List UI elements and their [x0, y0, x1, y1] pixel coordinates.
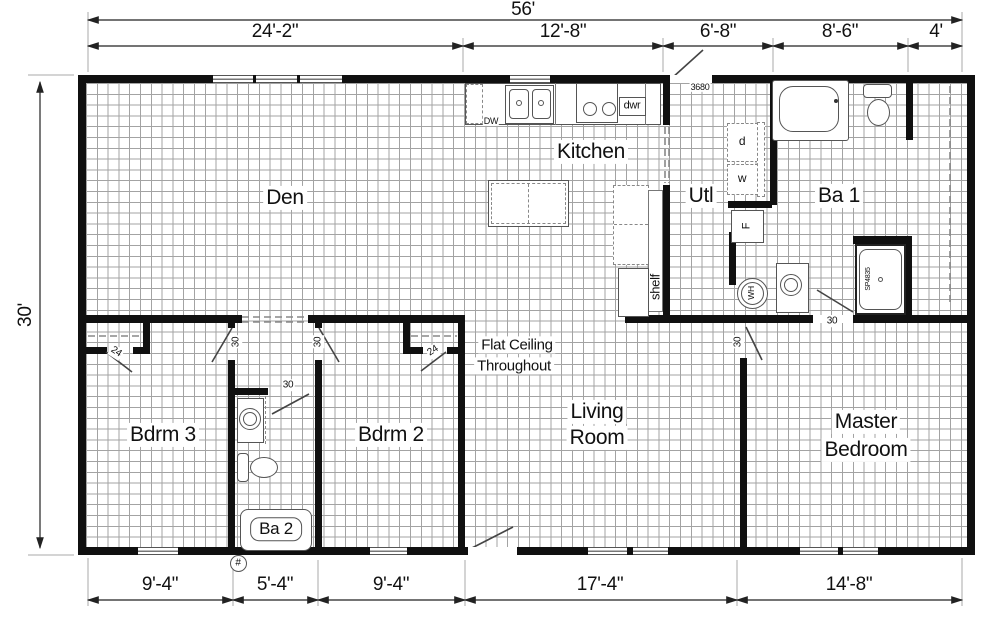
window [213, 75, 253, 83]
linework-layer [0, 0, 1000, 625]
door-leaf [212, 328, 232, 362]
floor-plan: Den Kitchen Utl Ba 1 Bdrm 3 Bdrm 2 Livin… [0, 0, 1000, 625]
door-leaf [272, 394, 309, 414]
door-leaf [672, 50, 703, 78]
door-size-tag: 3680 [690, 82, 711, 92]
door-size-30: 30 [732, 336, 744, 349]
window [300, 75, 342, 83]
window [800, 547, 838, 555]
window [633, 547, 668, 555]
window [370, 547, 407, 555]
dashed-features [88, 86, 950, 336]
shower-model-label: SP4835 [865, 264, 873, 293]
door-leaves [106, 50, 853, 549]
furnace-label: F [741, 222, 754, 230]
window [510, 75, 550, 83]
room-label-ba2: Ba 2 [250, 517, 302, 541]
extension-lines [28, 12, 962, 606]
water-heater-label: WH [747, 283, 757, 303]
door-leaf [817, 290, 853, 312]
window [843, 547, 878, 555]
door-size-30: 30 [312, 336, 324, 349]
window [588, 547, 627, 555]
door-opening-entry [468, 547, 517, 555]
door-size-30: 30 [282, 379, 295, 391]
shelf-label: shelf [649, 271, 664, 303]
dryer-label: d [738, 135, 746, 149]
door-size-30: 30 [826, 315, 839, 327]
washer-label: w [737, 172, 747, 186]
hash-symbol: # [235, 557, 240, 569]
door-leaf [746, 327, 762, 360]
window [256, 75, 297, 83]
drawer-label: dwr [623, 100, 642, 113]
dimension-lines [40, 20, 962, 600]
door-size-30: 30 [230, 336, 242, 349]
door-leaf [470, 527, 513, 549]
window [138, 547, 178, 555]
dishwasher-label: DW [483, 116, 499, 126]
